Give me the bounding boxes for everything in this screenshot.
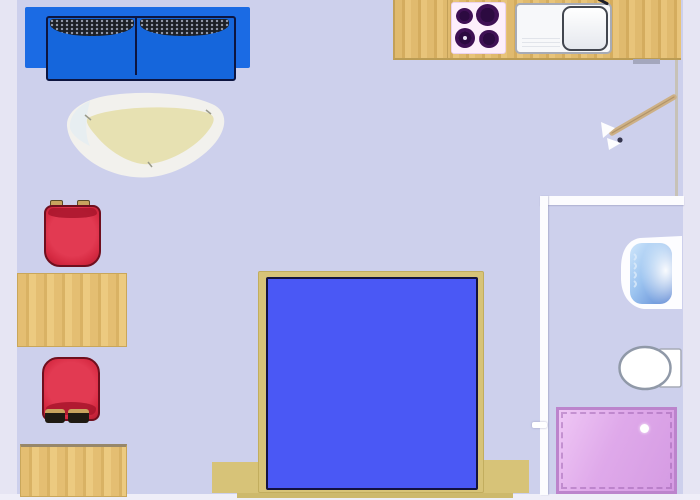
- sofa-cushion-divider: [135, 18, 137, 75]
- entry-door: [593, 88, 688, 153]
- chair-upper-backrest: [48, 208, 97, 218]
- burner-center-dot: [463, 36, 467, 40]
- burner-bottom-right: [479, 30, 499, 48]
- bathroom-wash-basin: [618, 230, 682, 315]
- shower-tray-inner-edge: [561, 412, 672, 489]
- bathroom-wall-left: [540, 196, 548, 495]
- bed-foot-bench-left: [212, 462, 262, 493]
- shower-drain-icon: [640, 424, 649, 433]
- chair-foot-right: [68, 409, 89, 423]
- bed-foot-bench-right: [481, 460, 529, 493]
- chair-foot-left: [45, 409, 65, 423]
- dining-table-lower: [20, 444, 127, 497]
- burner-top-left: [456, 8, 473, 24]
- bed-mattress: [266, 277, 478, 490]
- bathroom-wall-top: [540, 196, 684, 205]
- sink-drainboard: [522, 36, 560, 50]
- door-handle-icon: [617, 137, 622, 142]
- kitchen-sink-basin: [562, 6, 608, 51]
- area-rug: [60, 86, 230, 186]
- burner-top-right: [476, 4, 499, 26]
- counter-end-shadow: [633, 59, 660, 64]
- exterior-wall-right: [683, 0, 700, 500]
- dining-table-upper: [17, 273, 127, 347]
- bathroom-door-mark: [532, 422, 547, 428]
- floor-plan: [0, 0, 700, 500]
- toilet: [612, 340, 687, 395]
- exterior-wall-left: [0, 0, 17, 500]
- counter-seam: [447, 0, 448, 58]
